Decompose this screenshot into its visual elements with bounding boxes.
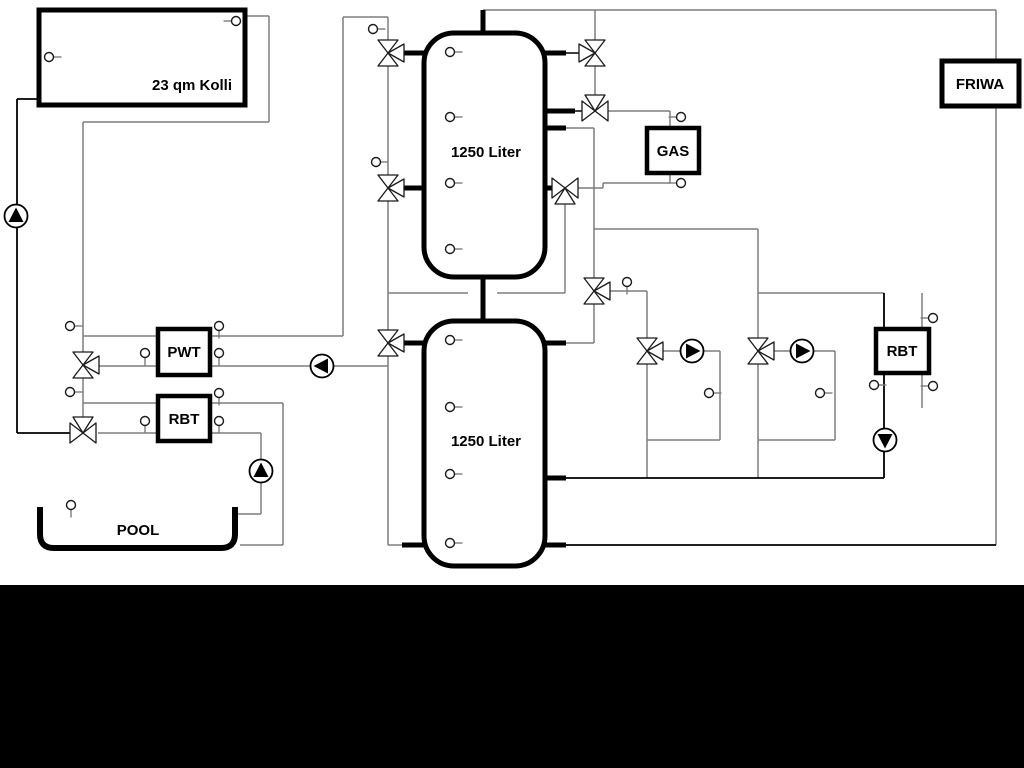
pwt-label: PWT (167, 344, 200, 361)
pool-label: POOL (117, 522, 160, 539)
pump-icon (791, 340, 814, 363)
tank-lower-label: 1250 Liter (451, 433, 521, 450)
schematic-page: 23 qm Kolli 1250 Liter 1250 Liter PWT RB… (0, 0, 1024, 768)
footer-black-band (0, 585, 1024, 768)
pump-icon (681, 340, 704, 363)
gas-label: GAS (657, 143, 690, 160)
pump-icon (311, 355, 334, 378)
friwa-label: FRIWA (956, 76, 1004, 93)
collector-label: 23 qm Kolli (152, 77, 232, 94)
tank-upper-label: 1250 Liter (451, 144, 521, 161)
pump-icon (5, 205, 28, 228)
rbt-left-label: RBT (169, 411, 200, 428)
piping-diagram: 23 qm Kolli 1250 Liter 1250 Liter PWT RB… (0, 0, 1024, 768)
rbt-right-label: RBT (887, 343, 918, 360)
pump-icon (250, 460, 273, 483)
pump-icon (874, 429, 897, 452)
